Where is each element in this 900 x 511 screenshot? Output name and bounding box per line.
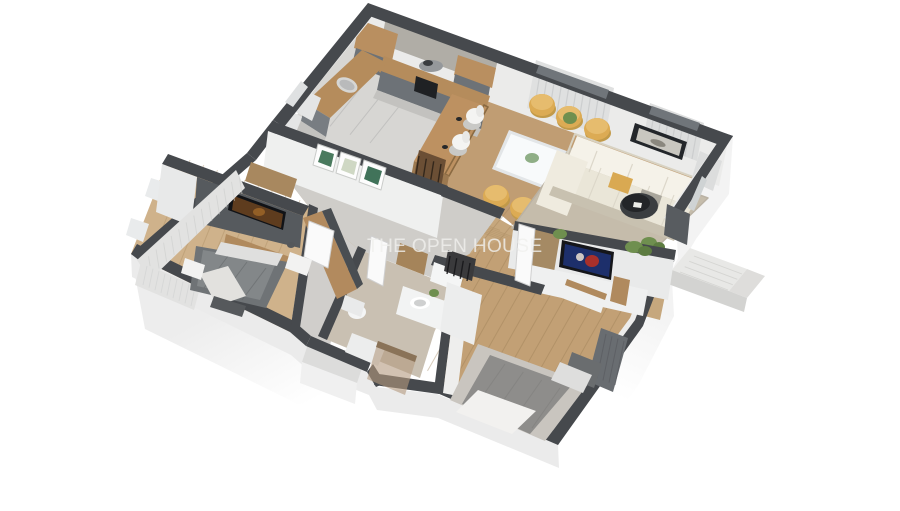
svg-text:THE OPEN HOUSE: THE OPEN HOUSE: [367, 236, 542, 257]
